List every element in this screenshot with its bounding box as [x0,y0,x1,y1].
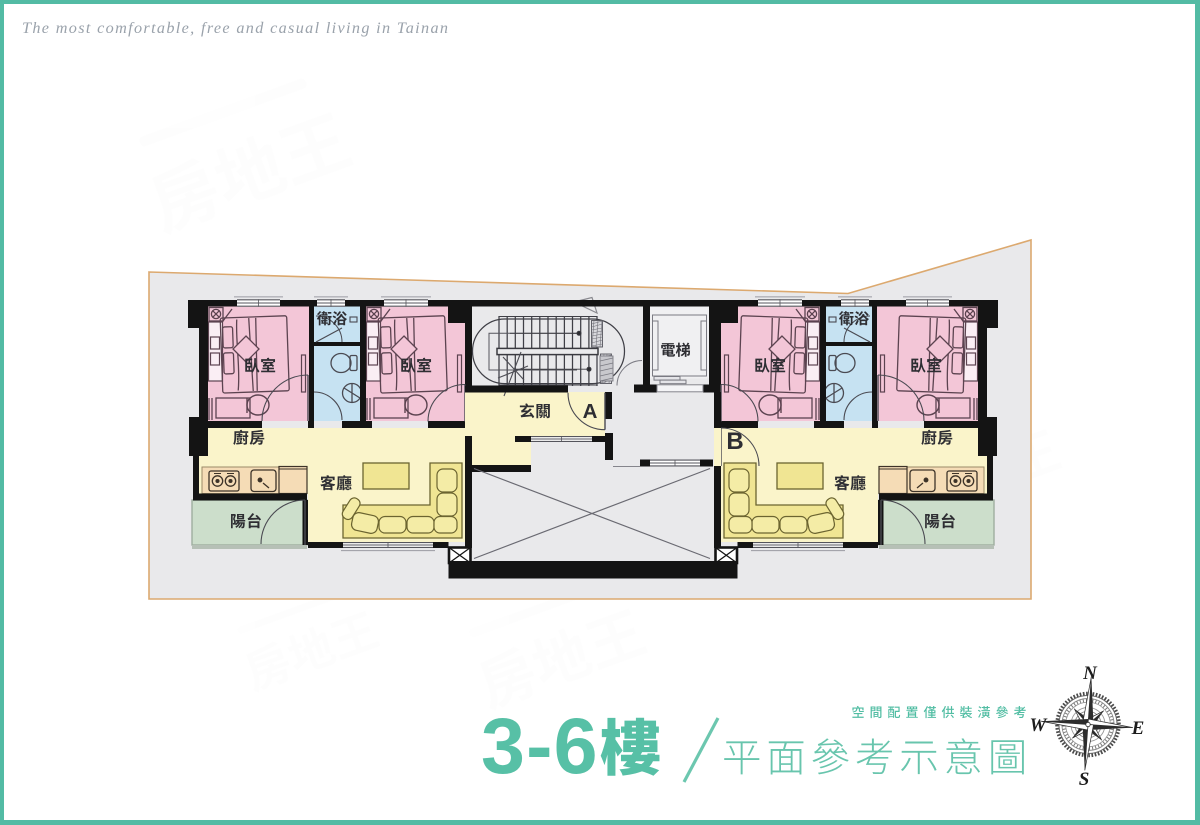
svg-text:E: E [1131,718,1145,739]
svg-text:A: A [583,400,598,423]
svg-text:The most comfortable, free and: The most comfortable, free and casual li… [22,19,449,37]
svg-text:S: S [1079,769,1090,790]
svg-text:W: W [1030,715,1048,736]
svg-text:N: N [1082,663,1098,684]
svg-text:3-6: 3-6 [481,701,599,790]
svg-text:B: B [726,428,743,455]
